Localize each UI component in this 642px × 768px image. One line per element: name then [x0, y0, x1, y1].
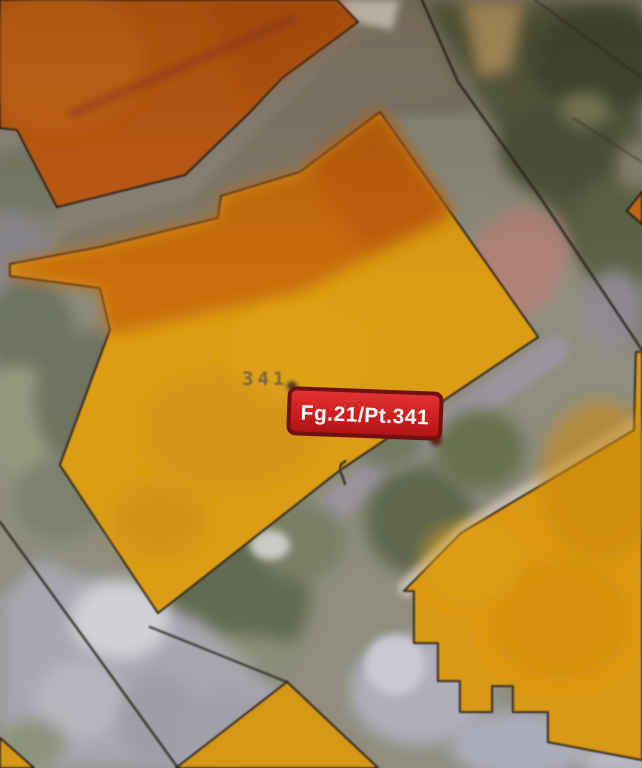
parcel-number-label: 341 [242, 368, 288, 390]
vignette-overlay [0, 0, 642, 768]
map-viewport[interactable]: 341 Fg.21/Pt.341 [0, 0, 642, 768]
cadastral-map-canvas[interactable]: 341 Fg.21/Pt.341 [0, 0, 642, 768]
